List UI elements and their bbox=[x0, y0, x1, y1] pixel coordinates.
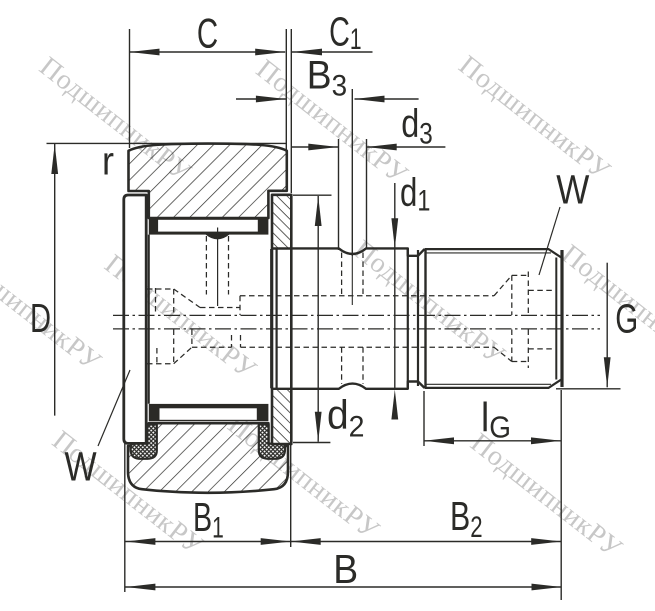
svg-text:B: B bbox=[333, 547, 358, 592]
svg-text:W: W bbox=[556, 167, 589, 213]
svg-text:r: r bbox=[102, 140, 114, 184]
svg-text:G: G bbox=[615, 296, 638, 342]
svg-text:W: W bbox=[65, 444, 98, 490]
svg-text:C: C bbox=[197, 9, 218, 57]
svg-text:D: D bbox=[30, 295, 51, 341]
